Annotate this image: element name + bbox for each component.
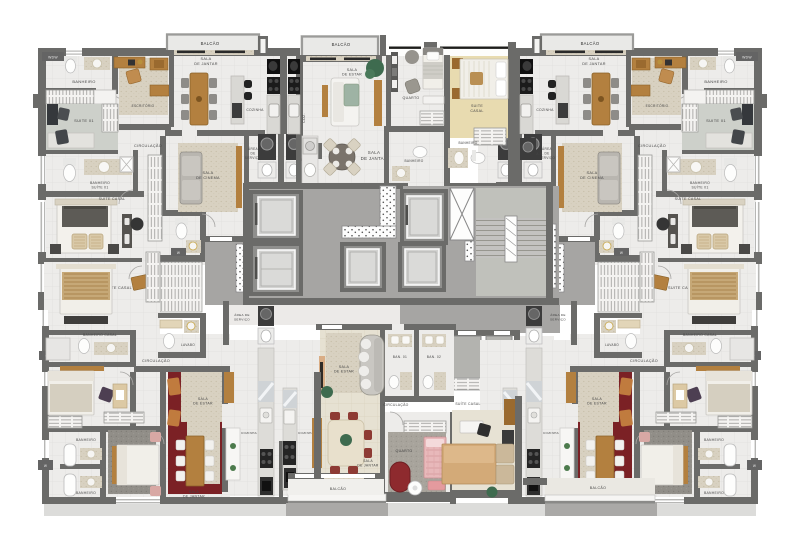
svg-text:DE JANTAR: DE JANTAR: [357, 464, 379, 468]
svg-text:BALCÃO: BALCÃO: [330, 486, 346, 491]
svg-text:SALA: SALA: [592, 397, 603, 401]
svg-text:BANHEIRO: BANHEIRO: [90, 181, 110, 185]
svg-text:SUITE CASAL: SUITE CASAL: [675, 197, 702, 201]
svg-text:SALA: SALA: [201, 57, 212, 61]
svg-text:SALA: SALA: [363, 459, 373, 463]
svg-text:LAVABO: LAVABO: [605, 343, 619, 347]
svg-text:DE ESTAR: DE ESTAR: [342, 73, 362, 77]
svg-text:DE ESTAR: DE ESTAR: [587, 402, 607, 406]
svg-text:ESCRITÓRIO: ESCRITÓRIO: [646, 103, 669, 108]
svg-text:BALCÃO: BALCÃO: [581, 41, 600, 46]
svg-text:DE JANTAR: DE JANTAR: [183, 495, 205, 499]
svg-text:BANHEIRO: BANHEIRO: [704, 79, 727, 84]
svg-text:BANHEIRO CASAL: BANHEIRO CASAL: [683, 333, 717, 337]
svg-text:ESCRITÓRIO: ESCRITÓRIO: [132, 103, 155, 108]
svg-text:BALCÃO: BALCÃO: [332, 42, 351, 47]
svg-text:BANHEIRO: BANHEIRO: [72, 79, 95, 84]
svg-text:SUÍTE CASAL: SUÍTE CASAL: [455, 402, 480, 406]
svg-text:ÁREA: ÁREA: [248, 147, 258, 151]
svg-text:BANHEIRO: BANHEIRO: [76, 438, 96, 442]
svg-text:DE CINEMA: DE CINEMA: [580, 176, 604, 180]
svg-text:BANHEIRO: BANHEIRO: [690, 181, 710, 185]
svg-text:SALA: SALA: [589, 57, 600, 61]
svg-text:SUITE CASAL: SUITE CASAL: [99, 197, 126, 201]
svg-text:DE: DE: [250, 152, 255, 156]
svg-text:BANHEIRO: BANHEIRO: [704, 491, 724, 495]
svg-text:SALA: SALA: [339, 365, 350, 369]
svg-text:WDW: WDW: [48, 56, 58, 60]
svg-text:CIRCULAÇÃO: CIRCULAÇÃO: [383, 402, 408, 407]
svg-text:SALA: SALA: [189, 490, 200, 494]
svg-text:SALA: SALA: [347, 68, 358, 72]
svg-text:SUITE 01: SUITE 01: [706, 118, 726, 123]
svg-text:CIRCULAÇÃO: CIRCULAÇÃO: [638, 143, 666, 148]
svg-text:SERVIÇO: SERVIÇO: [234, 318, 250, 322]
svg-text:A.S.: A.S.: [536, 152, 544, 156]
svg-text:COZINHA: COZINHA: [536, 108, 554, 112]
svg-text:COZ.: COZ.: [302, 113, 306, 123]
svg-text:SALA: SALA: [198, 397, 209, 401]
svg-text:CASAL: CASAL: [470, 109, 483, 113]
svg-text:SUITE 01: SUITE 01: [74, 118, 94, 123]
svg-text:W: W: [177, 251, 180, 255]
svg-text:BANHEIRO: BANHEIRO: [704, 438, 724, 442]
svg-text:ÁREA DE: ÁREA DE: [234, 313, 250, 317]
svg-text:ÁREA: ÁREA: [542, 147, 552, 151]
svg-text:BANHEIRO: BANHEIRO: [404, 159, 423, 163]
svg-text:WDW: WDW: [742, 56, 752, 60]
svg-text:SUÍTE 01: SUÍTE 01: [691, 186, 708, 190]
svg-text:BANHEIRO CASAL: BANHEIRO CASAL: [83, 333, 117, 337]
svg-text:SUITE: SUITE: [471, 104, 483, 108]
svg-text:DE JANTAR: DE JANTAR: [361, 156, 388, 161]
svg-text:BANHEIRO: BANHEIRO: [458, 141, 477, 145]
svg-text:DE ESTAR: DE ESTAR: [193, 402, 213, 406]
svg-text:CIRCULAÇÃO: CIRCULAÇÃO: [142, 358, 170, 363]
svg-text:COZINHA: COZINHA: [246, 108, 264, 112]
svg-text:SALA: SALA: [203, 171, 214, 175]
svg-text:BALCÃO: BALCÃO: [201, 41, 220, 46]
svg-text:SERVIÇO: SERVIÇO: [550, 318, 566, 322]
svg-text:W: W: [753, 464, 756, 468]
svg-text:BAN. 02: BAN. 02: [427, 355, 441, 359]
svg-text:LAVABO: LAVABO: [181, 343, 195, 347]
svg-text:DE: DE: [544, 152, 549, 156]
svg-text:DE CINEMA: DE CINEMA: [196, 176, 220, 180]
svg-text:BALCÃO: BALCÃO: [590, 485, 606, 490]
svg-text:SALA: SALA: [368, 150, 380, 155]
svg-text:COZINHA: COZINHA: [543, 431, 560, 435]
svg-text:BANHEIRO: BANHEIRO: [76, 491, 96, 495]
svg-text:COZINHA: COZINHA: [241, 431, 258, 435]
svg-text:DE ESTAR: DE ESTAR: [334, 370, 354, 374]
svg-text:CIRCULAÇÃO: CIRCULAÇÃO: [134, 143, 162, 148]
svg-text:QUARTO: QUARTO: [402, 96, 419, 100]
svg-text:SALA: SALA: [587, 171, 598, 175]
svg-text:DE JANTAR: DE JANTAR: [582, 62, 606, 66]
svg-text:DE JANTAR: DE JANTAR: [194, 62, 218, 66]
svg-text:W: W: [620, 251, 623, 255]
svg-text:BAN. 01: BAN. 01: [393, 355, 407, 359]
svg-text:SUÍTE 01: SUÍTE 01: [91, 186, 108, 190]
svg-text:QUARTO: QUARTO: [395, 449, 412, 453]
svg-text:ÁREA DE: ÁREA DE: [550, 313, 566, 317]
svg-text:CIRCULAÇÃO: CIRCULAÇÃO: [630, 358, 658, 363]
svg-text:W: W: [44, 464, 47, 468]
